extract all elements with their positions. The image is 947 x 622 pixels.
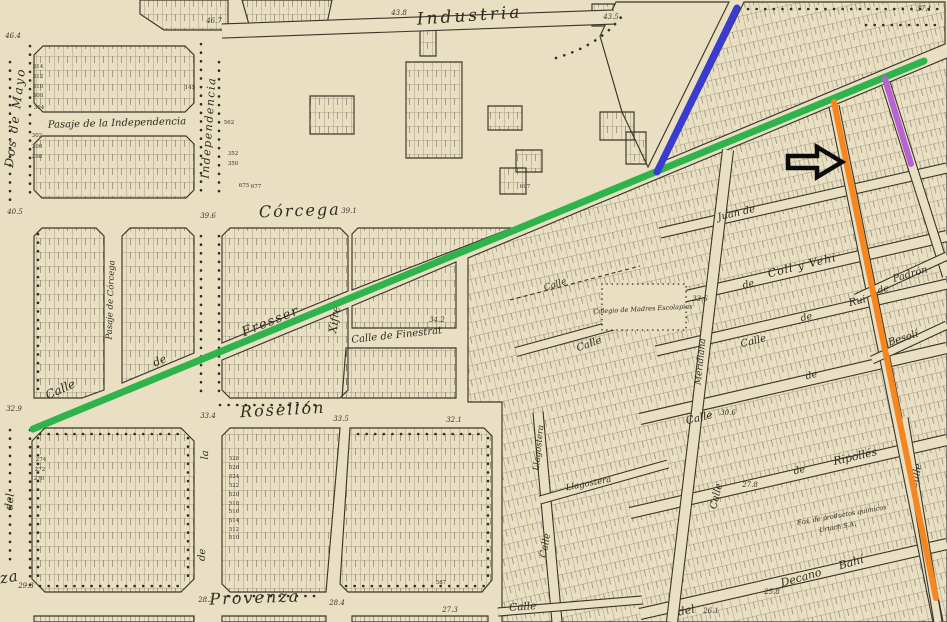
city-block [222,428,340,592]
city-block [406,62,462,158]
street-label: de [197,548,209,561]
parcel-number: 524 [229,474,240,480]
elevation-label: 30.6 [720,409,736,417]
elevation-label: 40.5 [6,208,23,216]
elevation-label: 27.3 [441,606,458,614]
city-block [34,136,194,198]
elevation-label: 43.5 [602,13,619,21]
elevation-label: 29.3 [17,582,34,590]
parcel-number: 314 [33,64,44,70]
elevation-label: 32.9 [6,405,22,413]
parcel-number: 528 [229,456,240,462]
parcel-number: 518 [229,501,240,507]
elevation-label: 32.1 [446,416,462,424]
parcel-number: 350 [228,161,239,167]
elevation-label: 28.3 [197,596,214,604]
parcel-number: 312 [33,74,44,80]
elevation-label: 39.6 [200,212,216,220]
elevation-label: 27.8 [741,481,758,489]
parcel-number: 304 [34,105,45,111]
parcel-number: 272 [35,467,46,473]
city-block [500,168,526,194]
city-block [34,616,194,622]
historic-city-map: IndustriaCórcegaRosellónProvenzazaDos de… [0,0,947,622]
parcel-number: 145 [185,85,196,91]
parcel-number: 352 [228,151,239,157]
parcel-number: 298 [32,154,43,160]
parcel-number: 310 [33,84,44,90]
parcel-number: 270 [34,476,45,482]
elevation-label: 25.8 [763,588,780,596]
parcel-number: 675 [239,183,250,189]
parcel-number: 308 [33,93,44,99]
parcel-number: 526 [229,465,240,471]
city-block [420,28,436,56]
parcel-number: 274 [36,457,47,463]
street-label: Calle [509,600,537,614]
parcel-number: 562 [224,120,235,126]
city-block [342,348,456,398]
city-block [32,428,194,592]
parcel-number: 522 [229,483,240,489]
elevation-label: 43.8 [390,9,407,17]
street-label: la [200,450,211,460]
elevation-label: 34.2 [429,316,445,324]
city-block [34,228,104,398]
street-label: Córcega [259,200,341,222]
parcel-number: 512 [229,527,240,533]
elevation-label: 46.4 [4,32,21,40]
city-block [626,132,646,164]
elevation-label: 26.1 [702,607,719,615]
elevation-label: 28.4 [328,599,345,607]
elevation-label: 37.1 [916,5,932,13]
city-block [340,428,492,592]
city-block [352,616,488,622]
parcel-number: 587 [436,580,447,586]
elevation-label: 33.5 [333,415,349,423]
elevation-label: 39.1 [341,207,357,215]
elevation-label: 33.6 [692,295,708,303]
city-block [222,616,326,622]
street-label: Provenza [208,586,300,608]
parcel-number: 510 [229,535,240,541]
map-canvas: IndustriaCórcegaRosellónProvenzazaDos de… [0,0,947,622]
parcel-number: 677 [251,184,262,190]
elevation-label: 33.4 [200,412,216,420]
parcel-number: 516 [229,509,240,515]
street-label: del [2,492,16,511]
street-label: za [0,567,20,588]
city-block [34,46,194,112]
parcel-number: 514 [229,518,240,524]
parcel-number: 300 [32,144,43,150]
parcel-number: 302 [32,133,43,139]
city-block [488,106,522,130]
parcel-number: 697 [520,184,531,190]
parcel-number: 520 [229,492,240,498]
city-block [310,96,354,134]
elevation-label: 46.7 [205,17,222,25]
